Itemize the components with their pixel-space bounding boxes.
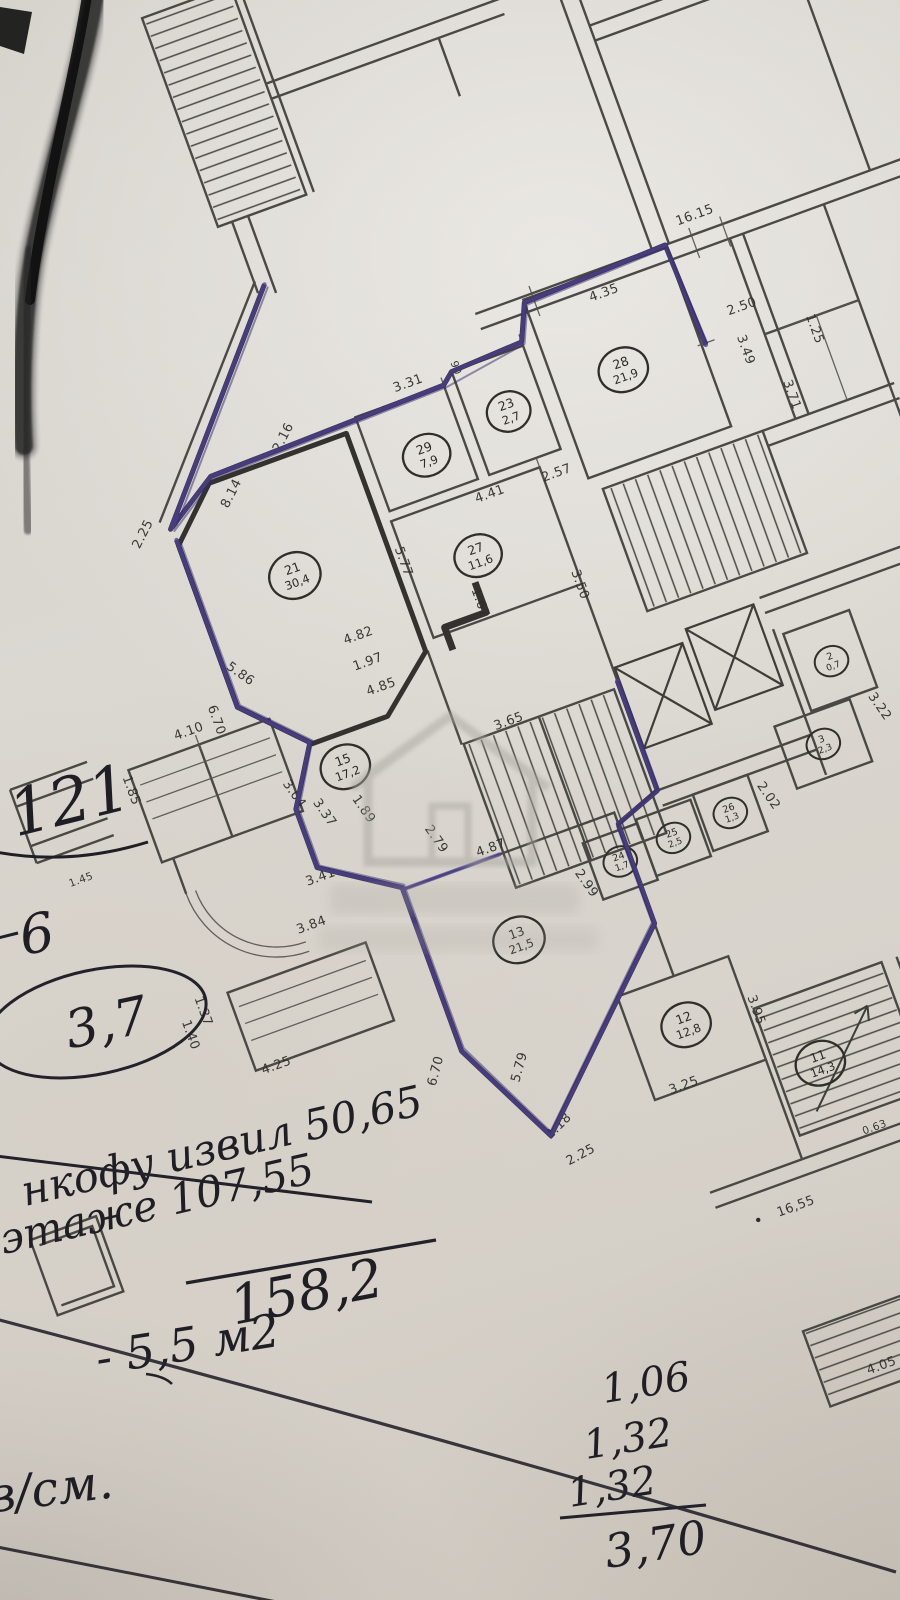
- handwritten-small-mark: [146, 1374, 172, 1384]
- room-label-23: 232,7: [481, 385, 536, 438]
- floor-plan-svg: 2.25 8.14 2.16 3.31 90 4.35 16.15 2.50 3…: [0, 0, 900, 1600]
- dimension-label: 4.25: [260, 1054, 294, 1079]
- corner-blot: [0, 6, 32, 54]
- handwritten-dash: [0, 933, 18, 938]
- handwritten-minus-note: - 5,5 м2: [92, 1303, 284, 1385]
- dimension-label: 2.57: [540, 461, 574, 486]
- watermark-text-blur: [330, 884, 580, 914]
- scanner-smudge: [0, 0, 96, 530]
- pen-diagonal-line-2: [0, 1546, 338, 1600]
- dimension-label: 0.63: [861, 1118, 889, 1138]
- room-label-27: 2711,6: [448, 528, 507, 584]
- room-label-21: 2130,4: [263, 545, 328, 606]
- dimension-label: 2.02: [753, 779, 783, 813]
- small-room-label: 261,3: [709, 793, 751, 833]
- dimension-label: 4.85: [364, 675, 398, 700]
- dimension-label: 6.70: [425, 1054, 447, 1087]
- staircase-top-left: [145, 0, 301, 222]
- dimension-label: 16.15: [674, 202, 716, 230]
- dimension-label: 3.25: [667, 1073, 701, 1098]
- handwritten-bottom-left: в/см.: [0, 1454, 116, 1525]
- dimension-label: 6.70: [204, 703, 229, 737]
- dimension-label: 4.82: [341, 624, 375, 649]
- staircase-right: [605, 433, 804, 608]
- handwritten-column-total: 3,70: [601, 1510, 711, 1579]
- stray-dot: [755, 1217, 761, 1223]
- dimension-label: 4.41: [473, 482, 507, 507]
- handwritten-column-2: 1,32: [580, 1409, 675, 1468]
- dimension-label: 4.10: [172, 719, 206, 744]
- dimension-label: 1.45: [67, 870, 95, 890]
- handwritten-number-121: 121: [2, 751, 138, 852]
- stairs-hatching: [145, 0, 900, 1463]
- dimension-label: 2.50: [725, 295, 759, 320]
- walls-thin: [25, 182, 900, 1047]
- dimension-label: 16,55: [775, 1193, 817, 1221]
- handwritten-number-6: 6: [14, 900, 59, 968]
- small-room-label: 20,7: [810, 641, 852, 681]
- dimension-label: 8.14: [218, 477, 245, 511]
- dimension-label: 3.49: [733, 333, 758, 367]
- floor-plan-photo: 2.25 8.14 2.16 3.31 90 4.35 16.15 2.50 3…: [0, 0, 900, 1600]
- dimension-label: 1.97: [351, 650, 385, 675]
- dimension-label: 2.25: [564, 1141, 598, 1169]
- handwriting: 121 6 3,7 нкофу извил 50,65 этаже 107,55…: [0, 751, 896, 1600]
- balcony-arc: [186, 861, 309, 984]
- dimension-label: 4.35: [587, 281, 621, 306]
- dimension-label: 1.25: [802, 312, 827, 346]
- room-label-28: 2821,9: [592, 341, 654, 399]
- handwritten-column-1: 1,06: [598, 1353, 693, 1412]
- watermark-text-blur: [318, 926, 598, 952]
- pen-diagonal-line: [0, 1318, 896, 1572]
- dimension-label: 2.25: [130, 517, 157, 551]
- dimension-label: 3.71: [779, 378, 804, 412]
- dimension-label: 2.79: [421, 822, 451, 856]
- dimension-label: 3.22: [864, 690, 894, 724]
- dimension-label: 3.37: [309, 796, 339, 830]
- room-label-12: 1212,8: [655, 996, 717, 1054]
- dimension-label: 5.79: [509, 1051, 531, 1084]
- handwritten-oval-value: 3,7: [60, 985, 154, 1061]
- dimension-label: 3.50: [567, 568, 592, 602]
- room-label-29: 297,9: [397, 427, 456, 483]
- dimension-label: 1.89: [348, 792, 378, 826]
